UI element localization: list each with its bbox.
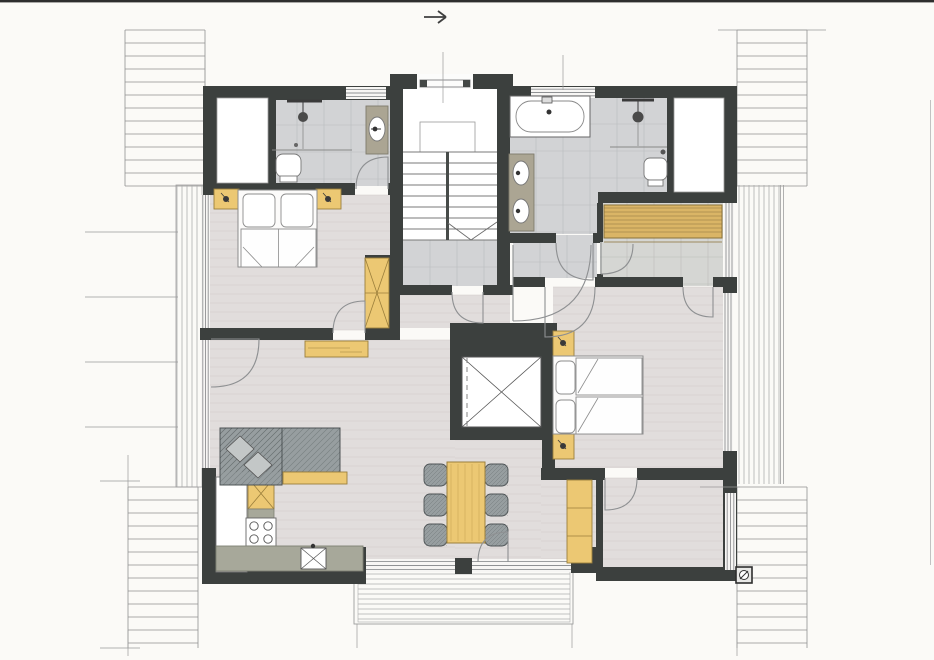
north-arrow: [424, 11, 446, 23]
staircase: [403, 89, 497, 240]
sauna-bench: [604, 205, 722, 242]
floor-plan-drawing: [0, 0, 934, 660]
sofa: [220, 428, 347, 485]
floor-plan-page: [0, 0, 934, 660]
rain-drain: [736, 567, 752, 583]
elevator: [462, 357, 541, 427]
